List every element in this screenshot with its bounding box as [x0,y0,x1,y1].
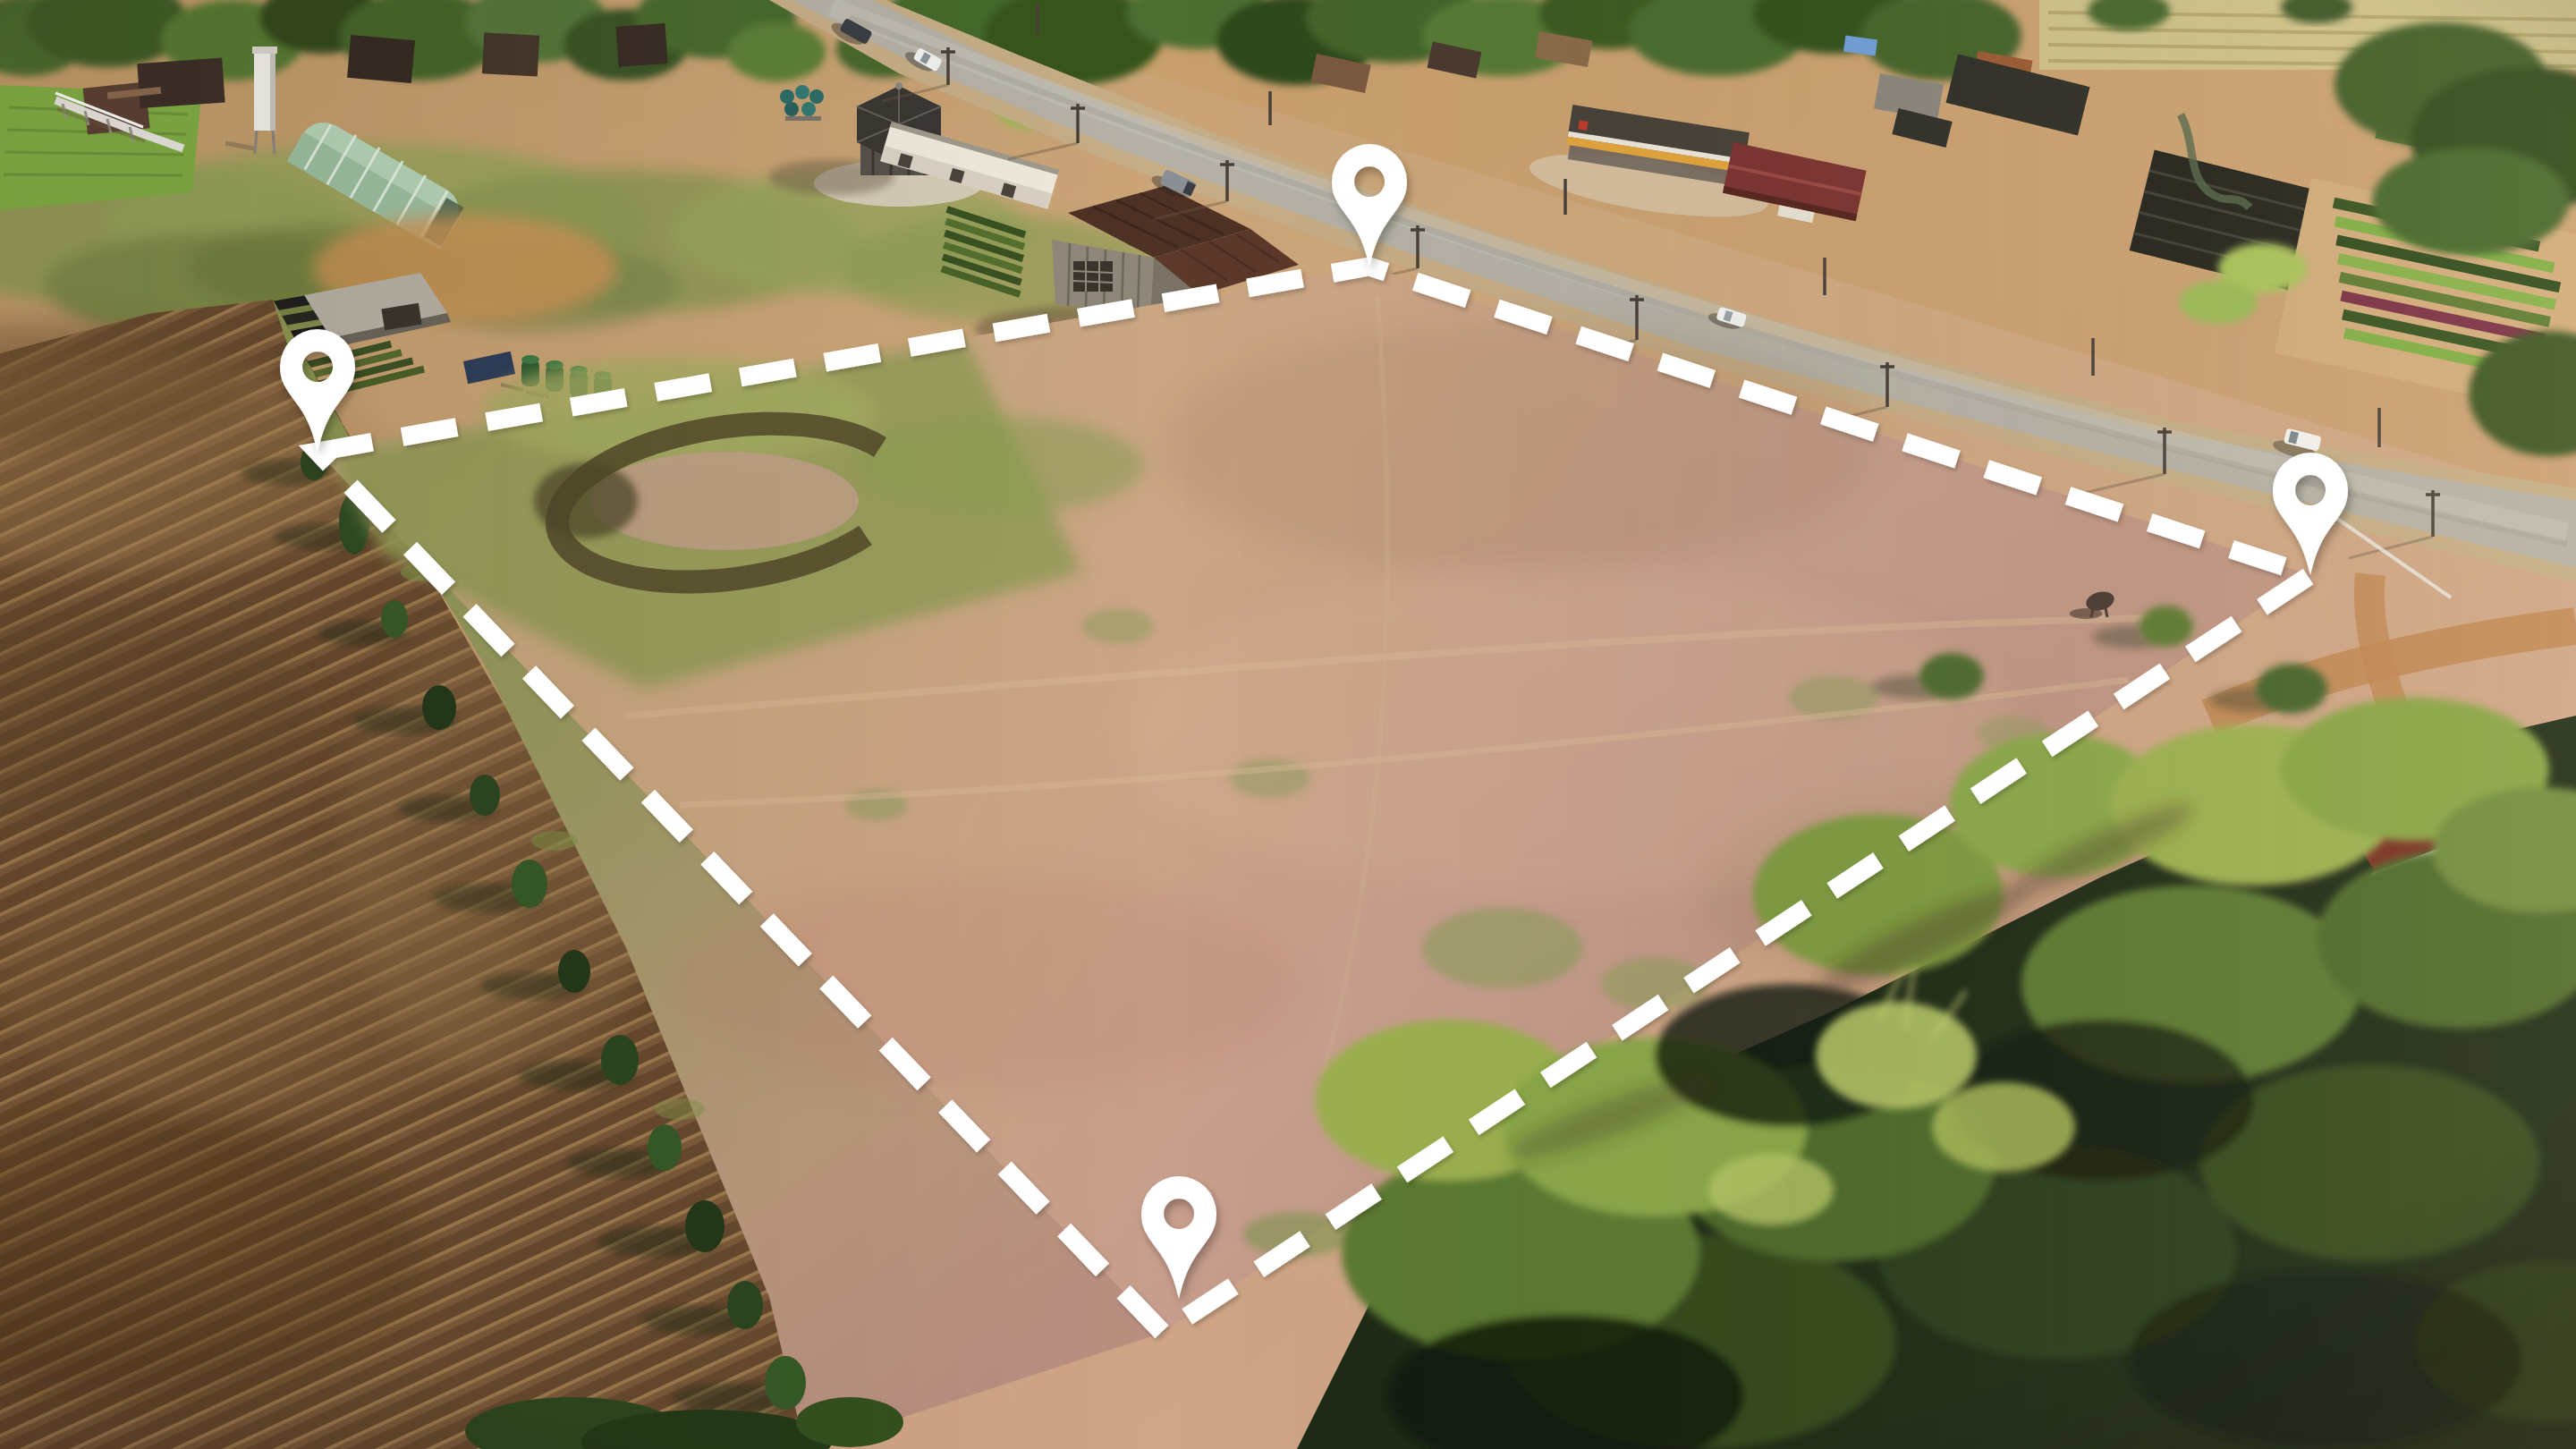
vignette [0,0,2576,1449]
aerial-photo-stage [0,0,2576,1449]
aerial-photo [0,0,2576,1449]
